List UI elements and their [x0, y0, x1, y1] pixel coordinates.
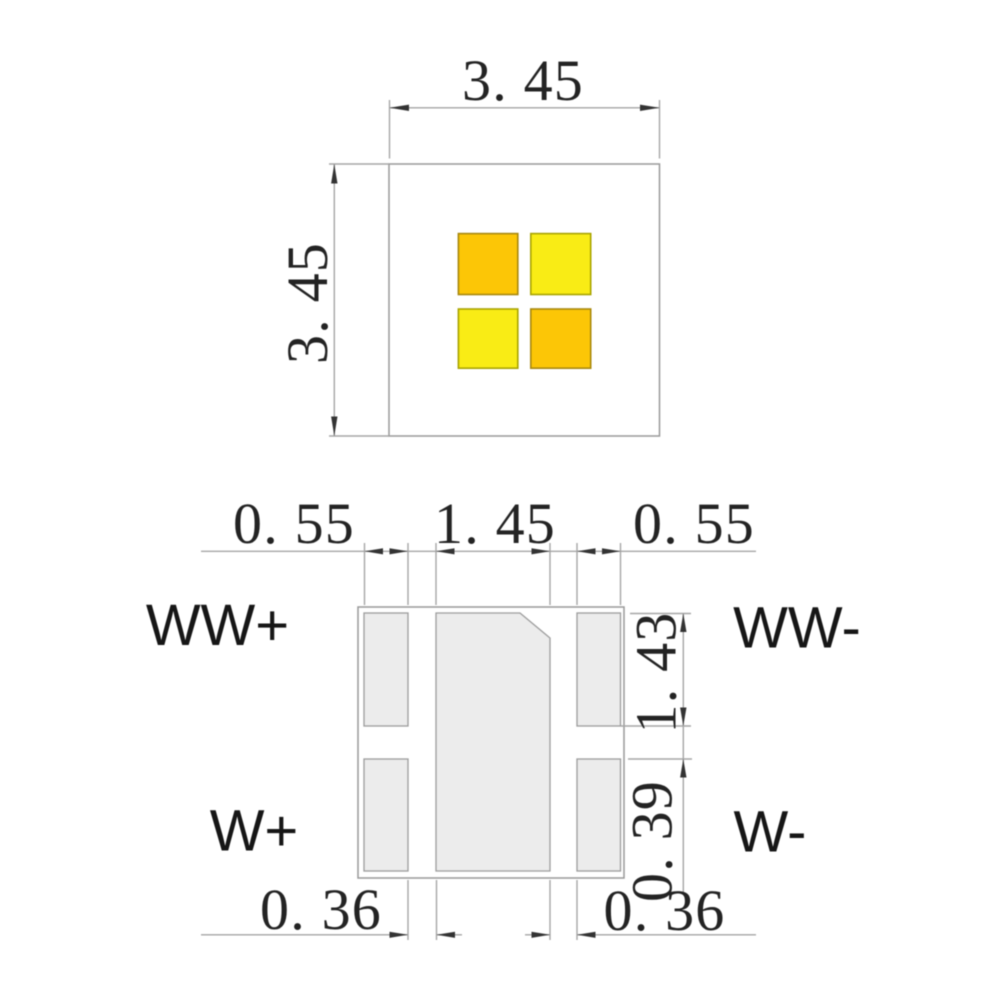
svg-text:0. 36: 0. 36 [260, 877, 382, 942]
svg-text:WW+: WW+ [146, 593, 289, 658]
svg-text:3. 45: 3. 45 [462, 48, 584, 113]
svg-text:3. 45: 3. 45 [275, 242, 340, 364]
svg-text:W+: W+ [210, 799, 299, 864]
svg-text:0. 55: 0. 55 [233, 491, 355, 556]
svg-text:WW-: WW- [733, 596, 861, 661]
svg-text:0. 36: 0. 36 [604, 878, 726, 943]
svg-text:1. 45: 1. 45 [434, 491, 556, 556]
svg-text:0. 55: 0. 55 [633, 491, 755, 556]
svg-text:1. 43: 1. 43 [624, 612, 689, 734]
svg-text:W-: W- [733, 800, 806, 865]
